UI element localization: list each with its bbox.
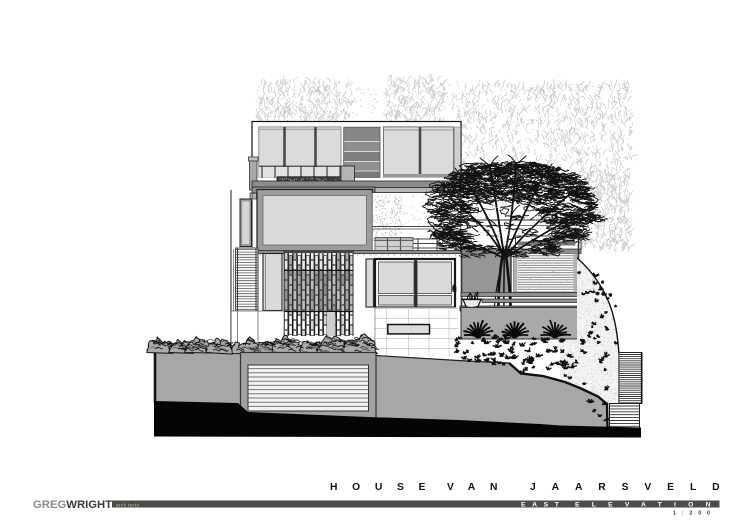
svg-text:VAN: VAN: [447, 482, 512, 493]
svg-text:arch tects: arch tects: [116, 503, 140, 508]
svg-text:JAARSVELD: JAARSVELD: [530, 482, 735, 493]
svg-text:GREGWRIGHT: GREGWRIGHT: [33, 499, 112, 511]
svg-text:HOUSE: HOUSE: [330, 482, 440, 493]
svg-text:1:200: 1:200: [673, 511, 716, 517]
svg-text:EAST: EAST: [521, 501, 566, 508]
svg-text:ELEVATION: ELEVATION: [575, 501, 723, 508]
